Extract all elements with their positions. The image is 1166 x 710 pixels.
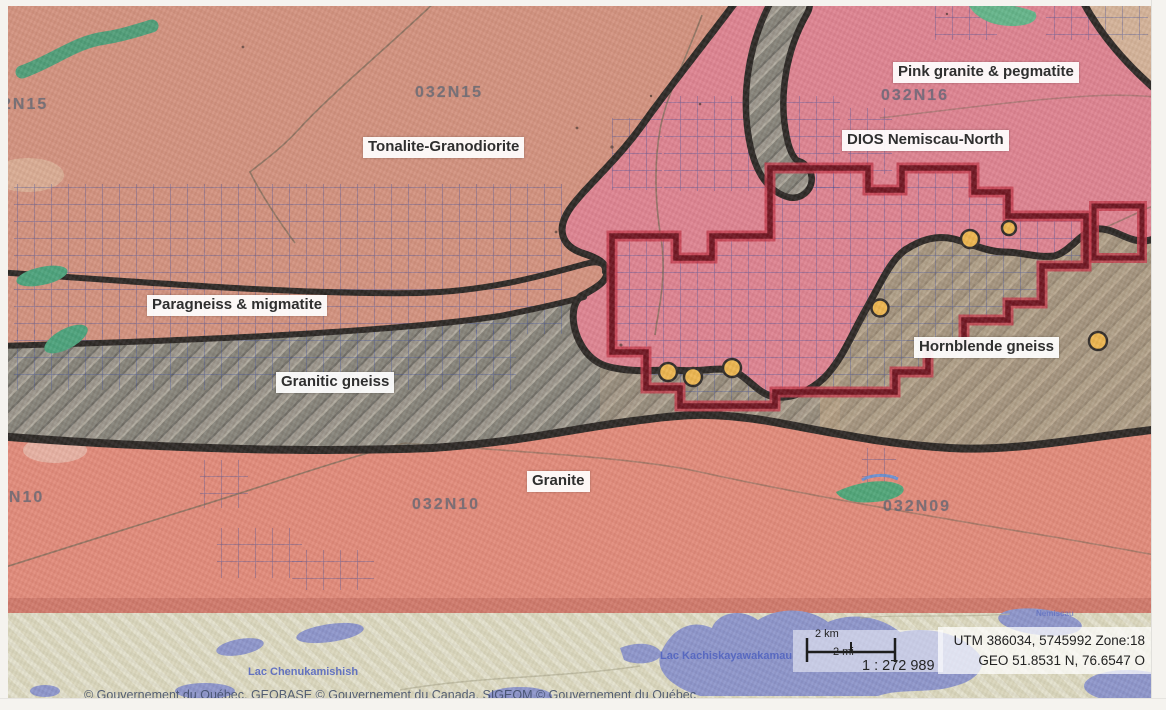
scan-margin-left <box>0 0 8 710</box>
label-pink-granite-pegmatite: Pink granite & pegmatite <box>893 62 1079 83</box>
scan-margin-right <box>1151 0 1166 710</box>
scan-margin-top <box>0 0 1166 6</box>
sheet-code-032N09: 032N09 <box>883 498 951 516</box>
sheet-code-032N16: 032N16 <box>881 87 949 105</box>
scale-ratio: 1 : 272 989 <box>862 658 935 674</box>
lake-label-chenukamishish: Lac Chenukamishish <box>248 666 358 678</box>
place-label-nemiscau: Nemiscau <box>1036 609 1074 618</box>
label-paragneiss-migmatite: Paragneiss & migmatite <box>147 295 327 316</box>
label-tonalite-granodiorite: Tonalite-Granodiorite <box>363 137 524 158</box>
scale-km-label: 2 km <box>815 628 839 640</box>
scanned-map-page: Tonalite-Granodiorite Pink granite & peg… <box>0 0 1166 710</box>
sheet-code-2N15: 2N15 <box>2 96 48 114</box>
scale-mi-label: 2 mi <box>833 646 854 658</box>
sheet-code-032N15: 032N15 <box>415 84 483 102</box>
scan-margin-bottom <box>0 698 1166 710</box>
label-hornblende-gneiss: Hornblende gneiss <box>914 337 1059 358</box>
utm-coordinates: UTM 386034, 5745992 Zone:18 <box>945 631 1145 651</box>
label-granite: Granite <box>527 471 590 492</box>
granite-edge-band <box>0 598 1166 613</box>
lake-label-kachiskayawakamau: Lac Kachiskayawakamau <box>660 650 792 662</box>
coordinate-readout: UTM 386034, 5745992 Zone:18 GEO 51.8531 … <box>938 627 1152 674</box>
geo-coordinates: GEO 51.8531 N, 76.6547 O <box>945 651 1145 671</box>
label-granitic-gneiss: Granitic gneiss <box>276 372 394 393</box>
map-canvas[interactable]: Tonalite-Granodiorite Pink granite & peg… <box>0 0 1166 710</box>
label-dios-nemiscau-north: DIOS Nemiscau-North <box>842 130 1009 151</box>
sheet-code-032N10: 032N10 <box>412 496 480 514</box>
